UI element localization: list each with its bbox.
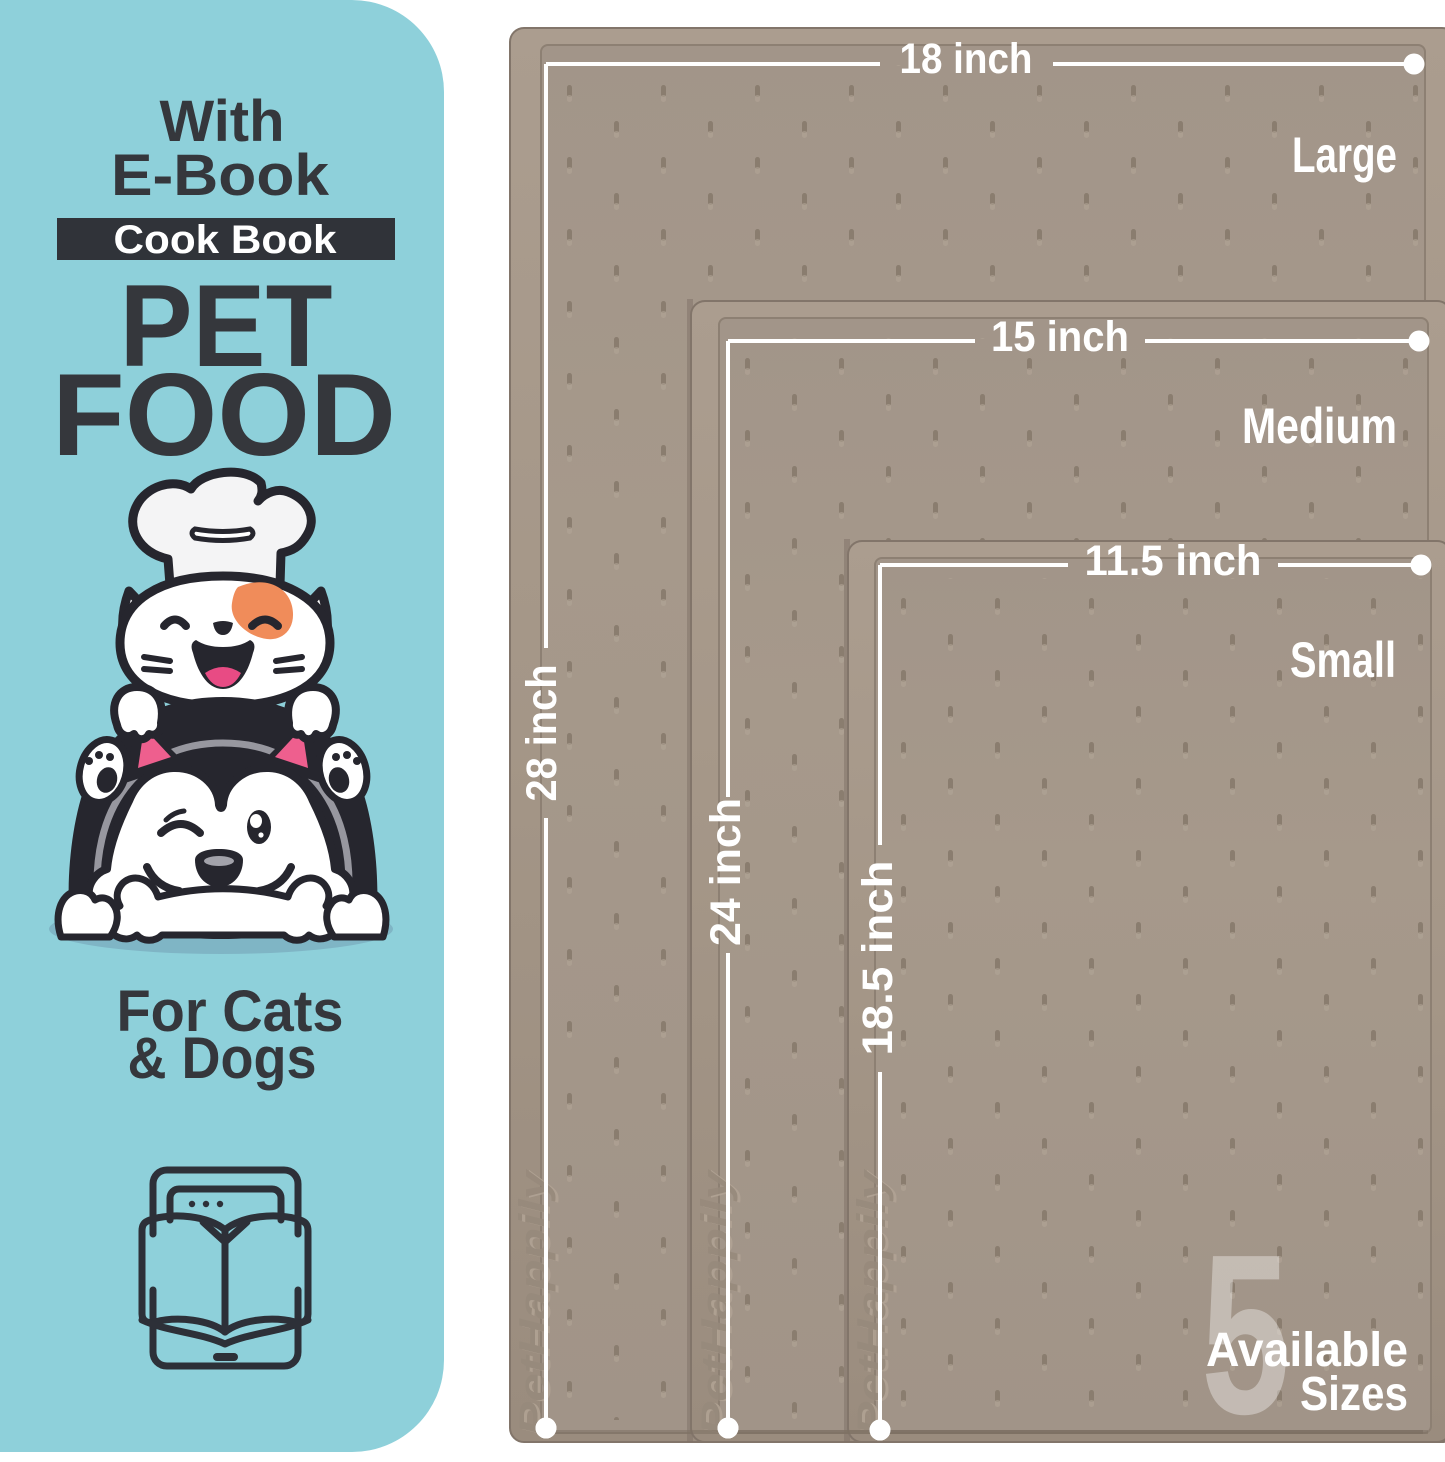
svg-text:18 inch: 18 inch <box>900 35 1033 83</box>
svg-text:PetHappily: PetHappily <box>694 1169 738 1436</box>
svg-text:Large: Large <box>1292 127 1397 183</box>
svg-text:Medium: Medium <box>1242 398 1397 454</box>
svg-text:15 inch: 15 inch <box>991 313 1129 361</box>
svg-text:PetHappily: PetHappily <box>850 1169 894 1436</box>
svg-text:11.5 inch: 11.5 inch <box>1085 537 1262 585</box>
svg-text:24 inch: 24 inch <box>702 798 750 946</box>
svg-text:PetHappily: PetHappily <box>512 1169 556 1436</box>
svg-text:18.5 inch: 18.5 inch <box>854 861 902 1056</box>
svg-text:Small: Small <box>1290 632 1396 688</box>
svg-text:Sizes: Sizes <box>1300 1368 1408 1421</box>
svg-text:28 inch: 28 inch <box>518 665 566 802</box>
